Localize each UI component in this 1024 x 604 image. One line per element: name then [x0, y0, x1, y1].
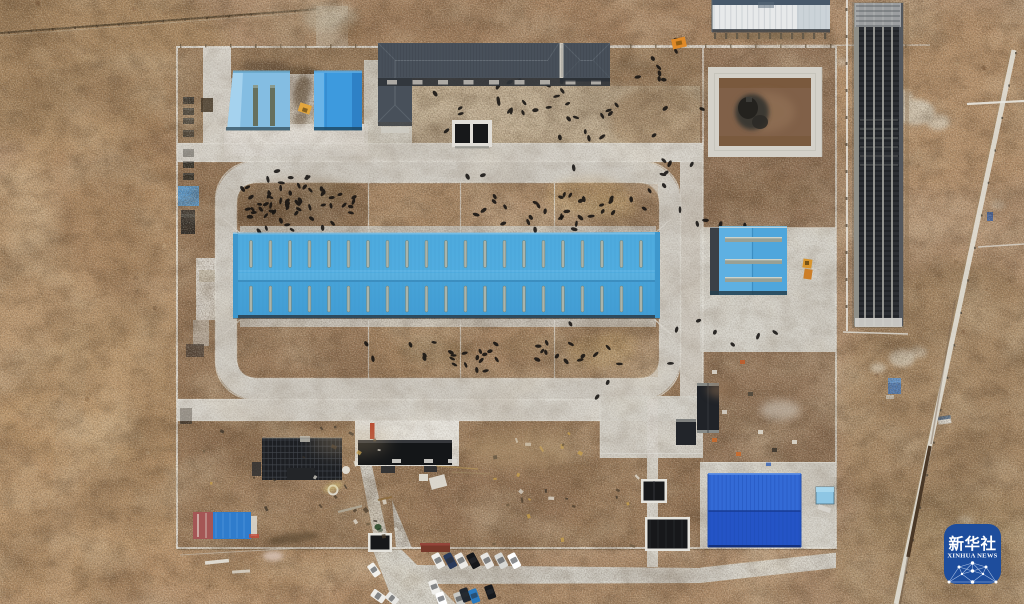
svg-text:XINHUA NEWS: XINHUA NEWS [947, 553, 997, 560]
svg-text:新华社: 新华社 [948, 534, 996, 553]
